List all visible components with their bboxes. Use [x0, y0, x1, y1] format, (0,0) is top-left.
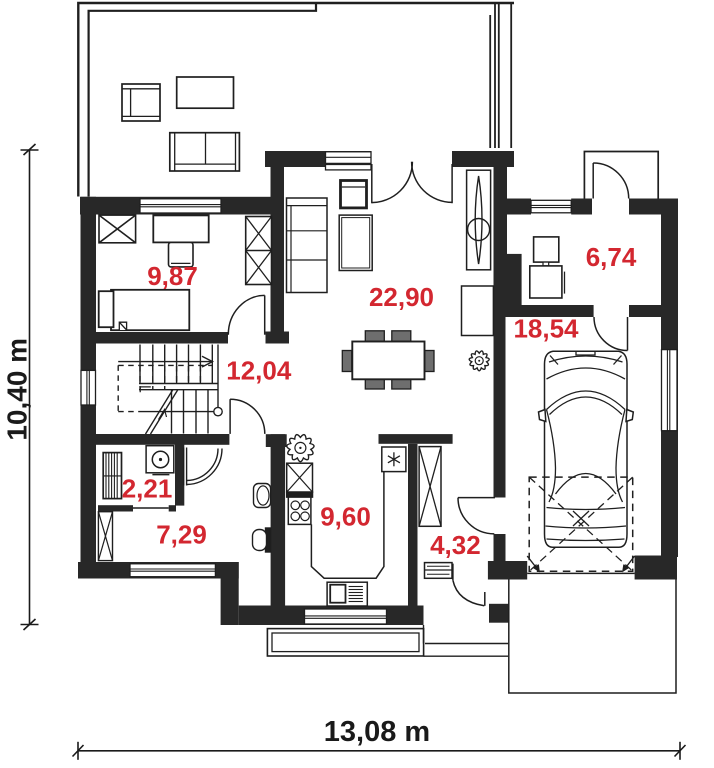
- svg-text:4,32: 4,32: [430, 530, 481, 560]
- svg-text:6,74: 6,74: [586, 242, 637, 272]
- svg-text:9,87: 9,87: [147, 261, 198, 291]
- svg-text:18,54: 18,54: [513, 314, 579, 344]
- svg-text:9,60: 9,60: [320, 502, 371, 532]
- svg-text:12,04: 12,04: [226, 356, 292, 386]
- svg-text:22,90: 22,90: [369, 282, 434, 312]
- svg-text:13,08 m: 13,08 m: [324, 716, 430, 748]
- svg-text:2,21: 2,21: [122, 474, 173, 504]
- svg-text:10,40 m: 10,40 m: [2, 338, 33, 441]
- svg-text:7,29: 7,29: [156, 520, 207, 550]
